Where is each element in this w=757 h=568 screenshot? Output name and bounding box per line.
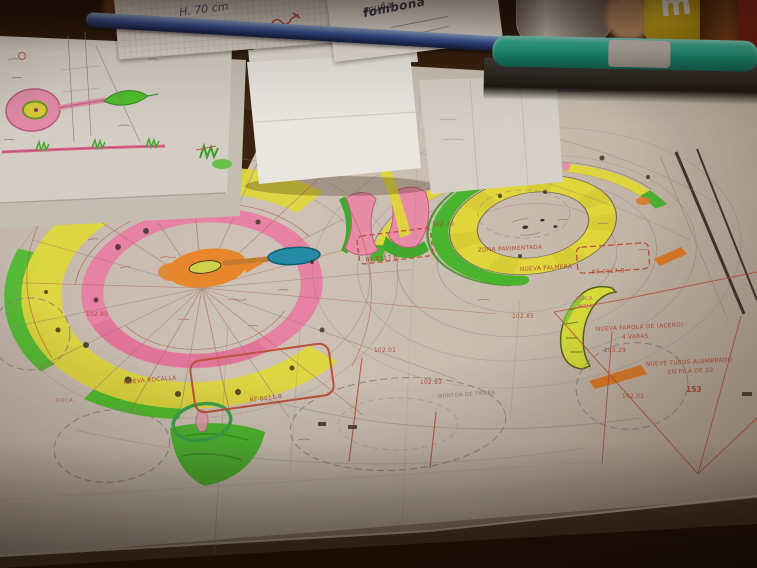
label-farola-1: NUEVA FAROLA DE (ACERO) [596,322,684,333]
pencil-case [483,35,757,107]
label-10329: 103.29 [604,348,626,354]
orange-bar-mark [589,365,647,389]
label-153: 153 [686,385,702,394]
label-zona: ZONA PAVIMENTADA [478,245,542,254]
pencil-case-lid [492,35,757,72]
handwriting-scribble [391,16,448,28]
label-10293: 102.93 [420,380,442,386]
label-10270: 102.70 [432,222,454,228]
orange-centre-bed [158,244,274,293]
label-tierra: MONTÓN DE TIERRA [438,389,496,400]
orange-arrow-mark [654,247,687,266]
note-measure-text: H. 70 cm [178,0,229,19]
road-edge-line [676,152,744,314]
top-left-sketch-sheets [0,32,246,228]
label-rf-right: RF-0117-B [592,268,625,276]
label-farola-2: 4 VARAS [622,334,649,341]
label-tubos-2: EN FILA DE 10 [668,368,714,376]
mug-letter: m [658,0,693,25]
label-roca-right-1: ROCA [576,296,593,302]
label-tubos-1: NUEVE TUBOS ALUMBRADO [646,357,733,368]
label-10285: 102.85 [512,314,534,320]
label-10201-b: 102.01 [622,394,644,400]
photograph-desk-with-plans: RF-0117-T 102.70 ZONA PAVIMENTADA NUEVA … [0,0,757,568]
folded-sheet-front [247,54,421,184]
label-roca-left: ROCA [56,398,73,404]
logo-main: fombona [362,0,426,20]
label-10280: 102.80 [86,312,108,318]
label-rf-sail: RF 0117 B [366,255,399,264]
label-roca-right-2: ROJA [578,304,593,310]
label-10201-a: 102.01 [374,348,396,354]
pencil-case-hinge [608,40,671,68]
